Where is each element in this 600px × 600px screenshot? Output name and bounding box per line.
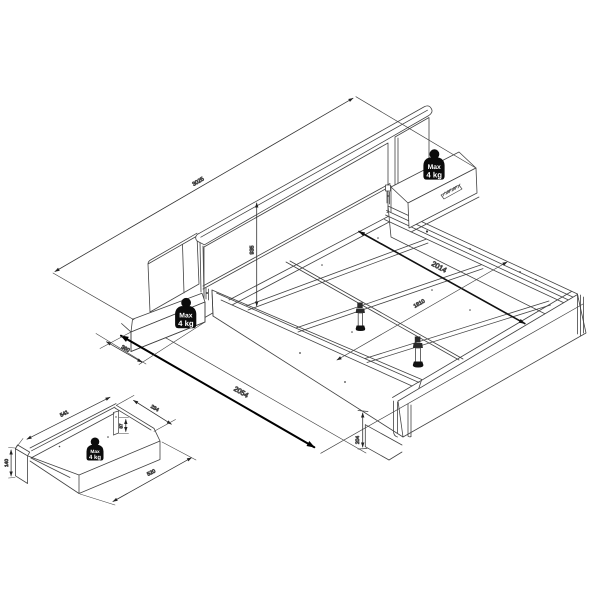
svg-text:140: 140 <box>4 459 10 467</box>
svg-text:Max: Max <box>90 449 100 455</box>
svg-text:234: 234 <box>149 404 159 414</box>
svg-text:4 kg: 4 kg <box>89 454 101 461</box>
svg-text:520: 520 <box>146 468 157 477</box>
svg-text:3025: 3025 <box>192 176 206 187</box>
svg-text:4 kg: 4 kg <box>426 170 442 179</box>
svg-text:360: 360 <box>120 344 131 353</box>
svg-text:2054: 2054 <box>232 386 249 400</box>
svg-text:204: 204 <box>355 436 361 445</box>
svg-text:541: 541 <box>59 409 70 418</box>
svg-text:4 kg: 4 kg <box>178 319 194 328</box>
svg-text:935: 935 <box>250 246 256 255</box>
svg-text:87: 87 <box>118 423 123 428</box>
